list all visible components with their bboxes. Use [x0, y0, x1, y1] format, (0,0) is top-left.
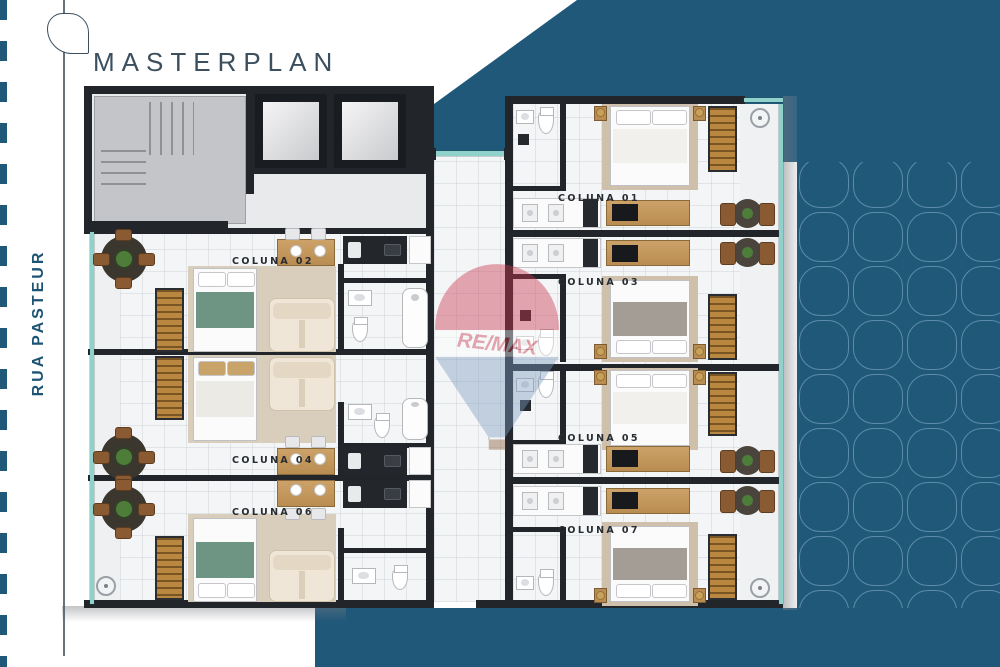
bistro	[733, 446, 762, 475]
appl	[583, 239, 598, 267]
wall	[338, 264, 344, 350]
lamp	[695, 372, 704, 381]
bistro	[733, 238, 762, 267]
chair	[285, 228, 300, 240]
bed	[610, 106, 690, 186]
plate	[314, 484, 326, 496]
sink	[516, 576, 534, 590]
shower-tray	[402, 288, 428, 348]
tv	[612, 204, 638, 221]
lamp	[695, 347, 704, 356]
sinksq	[522, 244, 538, 262]
chair	[311, 436, 326, 448]
wardrobe	[708, 534, 737, 600]
lamp	[596, 347, 605, 356]
tv	[612, 245, 638, 262]
sinksq	[548, 244, 564, 262]
appl	[518, 134, 529, 145]
remax-balloon-watermark: RE/MAX	[433, 262, 561, 458]
plate	[290, 484, 302, 496]
glass	[90, 232, 94, 604]
stairs	[94, 96, 246, 224]
wood	[277, 480, 335, 507]
wall	[513, 186, 566, 191]
bed	[610, 280, 690, 358]
wall	[505, 96, 745, 104]
wardrobe	[155, 356, 184, 420]
wall	[428, 148, 436, 160]
glass	[779, 104, 783, 604]
appl	[583, 445, 598, 473]
sinksq	[522, 492, 538, 510]
lamp	[596, 108, 605, 117]
sinksq	[548, 492, 564, 510]
counter	[409, 480, 431, 508]
sink	[348, 404, 372, 420]
bistro	[733, 199, 762, 228]
bed	[610, 526, 690, 602]
kitchen	[343, 447, 407, 475]
wall	[84, 86, 434, 94]
wall	[84, 86, 92, 232]
wall	[560, 104, 566, 188]
plate	[314, 245, 326, 257]
tv	[612, 492, 638, 509]
kitchen	[343, 480, 407, 508]
sinksq	[522, 204, 538, 222]
elevator	[255, 94, 327, 168]
sinksq	[548, 204, 564, 222]
wall	[504, 148, 513, 160]
shower-head	[750, 108, 770, 128]
shadow-r	[783, 96, 797, 610]
wall	[338, 528, 344, 602]
wardrobe	[708, 372, 737, 436]
wall	[84, 228, 434, 234]
bistro	[733, 486, 762, 515]
lamp	[695, 591, 704, 600]
glass	[744, 98, 783, 102]
wardrobe	[708, 294, 737, 360]
bed	[193, 268, 257, 352]
wall	[88, 221, 228, 228]
appl	[583, 487, 598, 515]
counter	[409, 236, 431, 264]
tv	[612, 450, 638, 467]
lamp	[596, 372, 605, 381]
sofa	[269, 550, 335, 602]
shower-head	[750, 578, 770, 598]
elevator	[334, 94, 406, 168]
sink	[516, 110, 534, 124]
wardrobe	[155, 536, 184, 600]
chair	[311, 228, 326, 240]
wardrobe	[155, 288, 184, 352]
shower-tray	[402, 398, 428, 440]
sink	[352, 568, 376, 584]
table-round	[101, 236, 147, 282]
glass	[436, 151, 506, 156]
table-round	[101, 486, 147, 532]
wall	[338, 278, 434, 283]
kitchen	[343, 236, 407, 264]
wall	[505, 230, 783, 237]
sofa	[269, 298, 335, 352]
floor	[740, 104, 781, 602]
table-round	[101, 434, 147, 480]
wardrobe	[708, 106, 737, 172]
shadow-b	[62, 606, 346, 622]
chair	[285, 436, 300, 448]
lamp	[695, 108, 704, 117]
bed	[193, 357, 257, 441]
wall	[338, 548, 434, 553]
sink	[348, 290, 372, 306]
shower-head	[96, 576, 116, 596]
wall	[505, 477, 783, 484]
plate	[314, 453, 326, 465]
bed	[193, 518, 257, 602]
wall	[560, 530, 566, 602]
sofa	[269, 357, 335, 411]
counter	[409, 447, 431, 475]
lamp	[596, 591, 605, 600]
